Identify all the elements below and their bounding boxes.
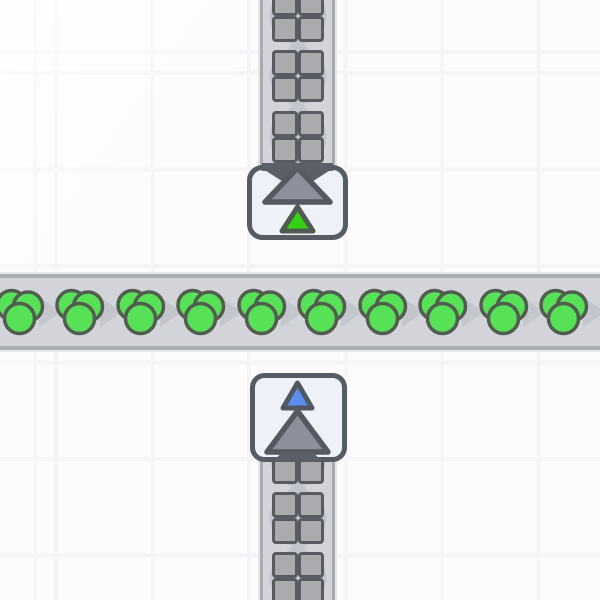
green-color-item [117,288,165,336]
green-color-item [298,288,346,336]
underground-belt-entrance[interactable] [246,370,351,470]
green-color-item [56,288,104,336]
green-color-item [540,288,588,336]
green-color-item [359,288,407,336]
underground-belt-exit[interactable] [243,161,353,251]
green-color-item [0,288,44,336]
game-viewport[interactable] [0,0,600,600]
green-color-item [177,288,225,336]
gray-square-shape-item [268,46,328,106]
gray-square-shape-item [268,107,328,167]
gray-square-shape-item [268,488,328,548]
green-color-item [419,288,467,336]
gray-square-shape-item [268,548,328,600]
green-color-item [480,288,528,336]
belt-cap [262,163,333,171]
green-color-item [238,288,286,336]
gray-square-shape-item [268,0,328,46]
